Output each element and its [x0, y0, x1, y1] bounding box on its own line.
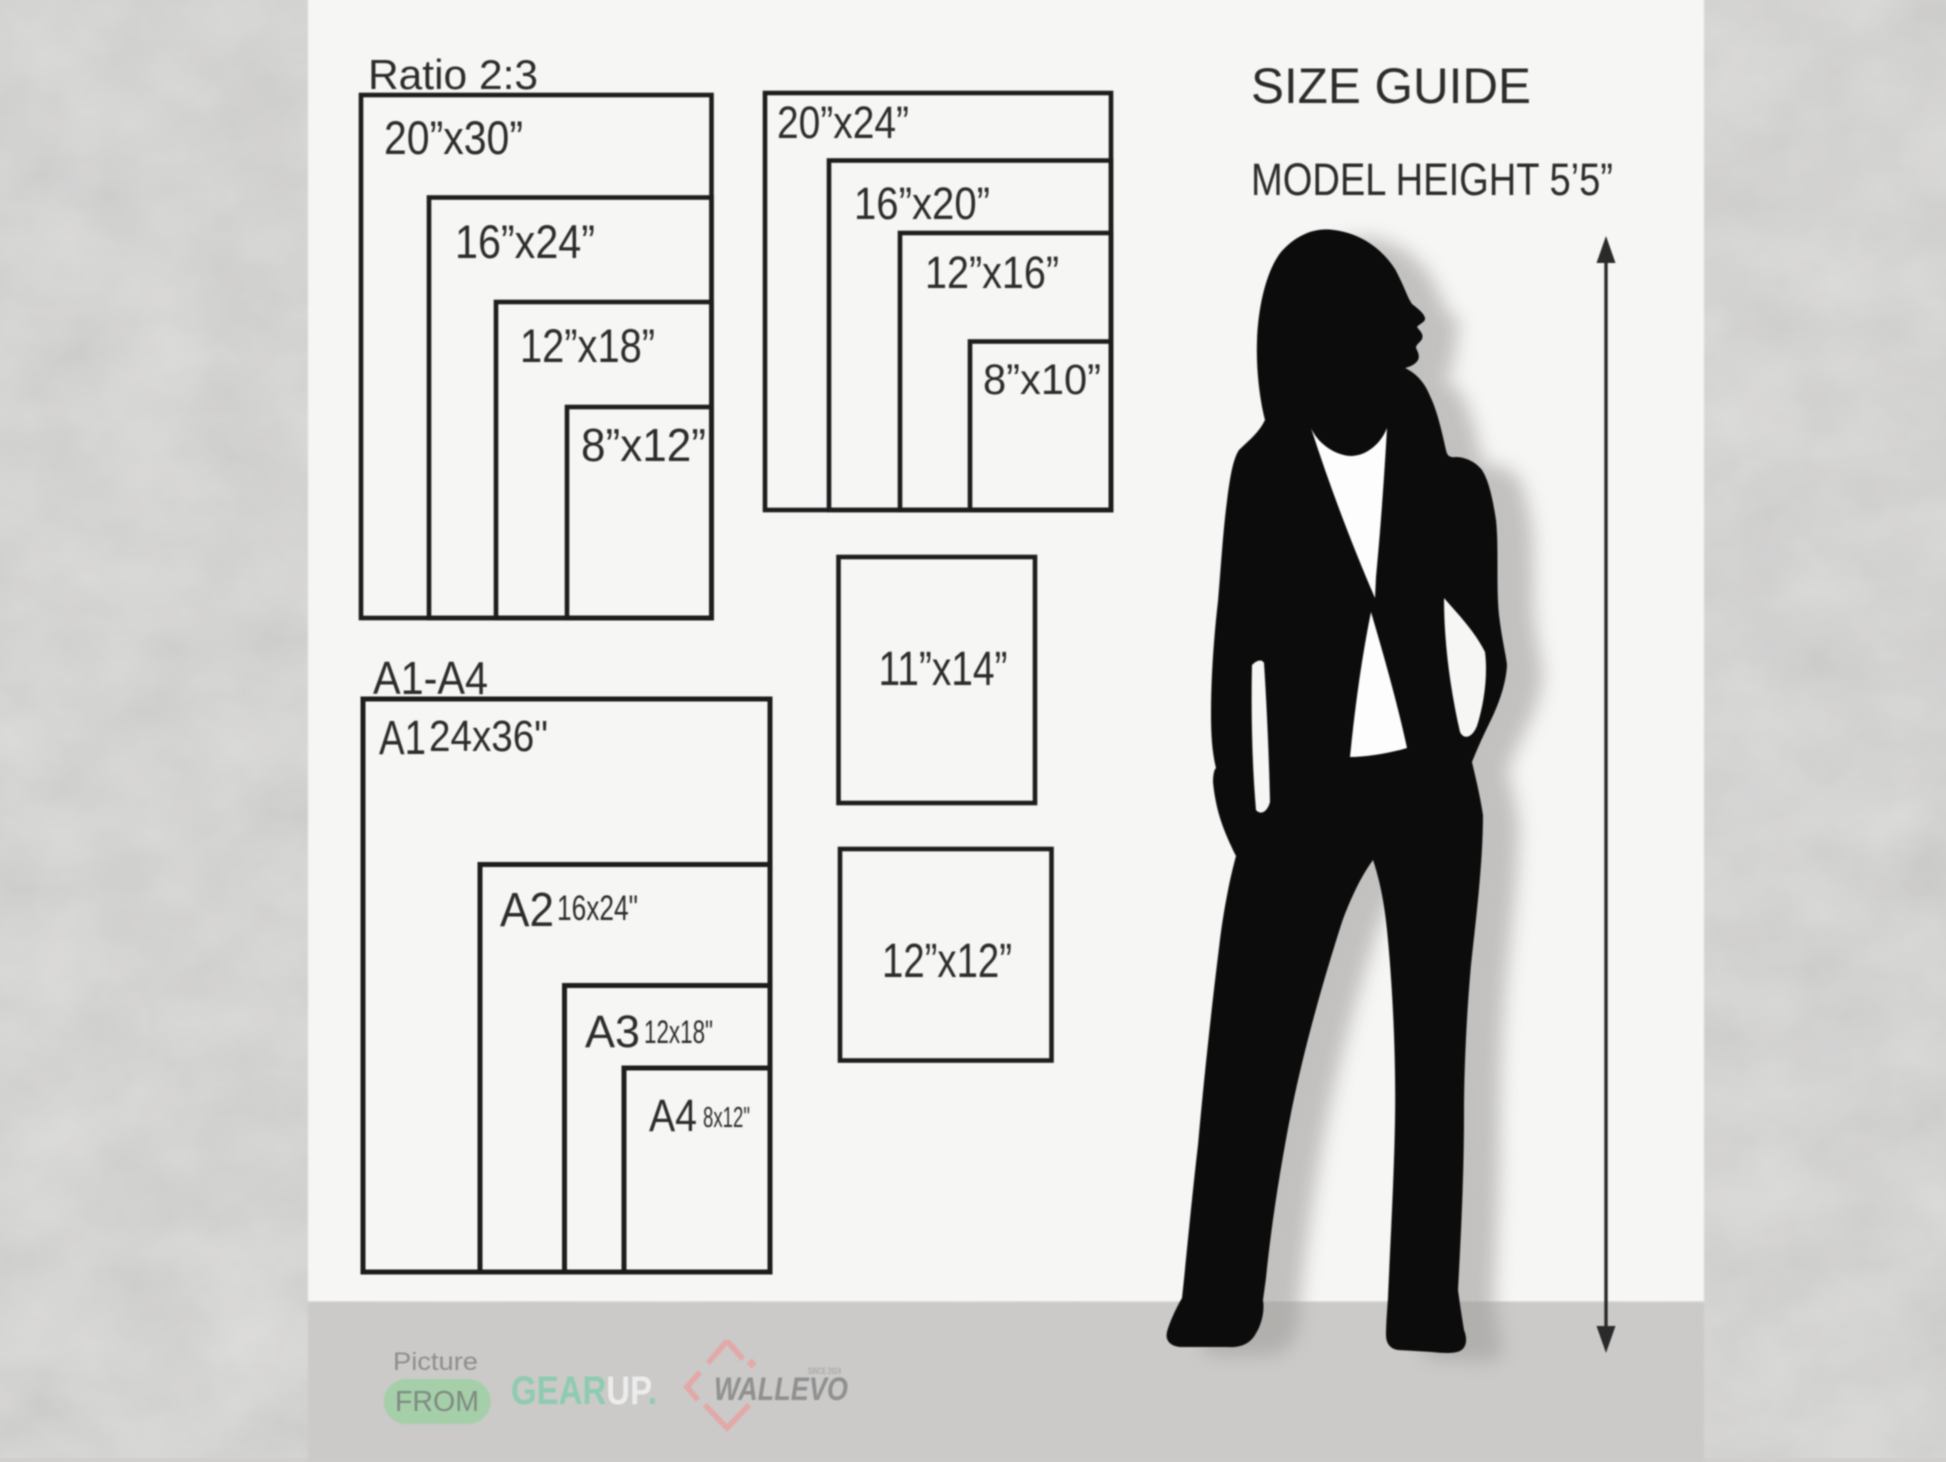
- svg-text:20”x30”: 20”x30”: [384, 111, 523, 164]
- svg-text:11”x14”: 11”x14”: [879, 643, 1008, 696]
- svg-text:MODEL HEIGHT 5’5”: MODEL HEIGHT 5’5”: [1251, 154, 1613, 205]
- svg-text:8”x12”: 8”x12”: [581, 419, 706, 471]
- svg-text:SIZE GUIDE: SIZE GUIDE: [1251, 58, 1531, 114]
- svg-text:Picture: Picture: [393, 1348, 478, 1376]
- svg-text:SINCE 2024: SINCE 2024: [808, 1366, 841, 1376]
- svg-text:16”x24”: 16”x24”: [455, 215, 595, 268]
- svg-text:12”x18”: 12”x18”: [520, 319, 655, 372]
- svg-text:A4: A4: [649, 1090, 697, 1141]
- svg-text:GEARUP.: GEARUP.: [511, 1369, 657, 1413]
- svg-text:FROM: FROM: [395, 1386, 479, 1418]
- svg-text:24x36": 24x36": [429, 712, 548, 761]
- svg-text:12”x16”: 12”x16”: [925, 247, 1059, 298]
- svg-text:16”x20”: 16”x20”: [854, 178, 990, 229]
- svg-text:WALLEVO: WALLEVO: [714, 1371, 848, 1407]
- svg-text:12x18": 12x18": [644, 1014, 713, 1050]
- svg-text:A1-A4: A1-A4: [373, 652, 488, 704]
- svg-text:8x12": 8x12": [703, 1102, 750, 1134]
- svg-text:A3: A3: [585, 1006, 640, 1057]
- svg-text:A1: A1: [379, 712, 426, 765]
- svg-text:20”x24”: 20”x24”: [777, 97, 909, 148]
- svg-text:12”x12”: 12”x12”: [882, 935, 1012, 988]
- svg-text:A2: A2: [500, 884, 554, 937]
- svg-text:16x24": 16x24": [557, 889, 638, 928]
- svg-text:Ratio 2:3: Ratio 2:3: [368, 51, 538, 98]
- svg-text:8”x10”: 8”x10”: [983, 356, 1101, 404]
